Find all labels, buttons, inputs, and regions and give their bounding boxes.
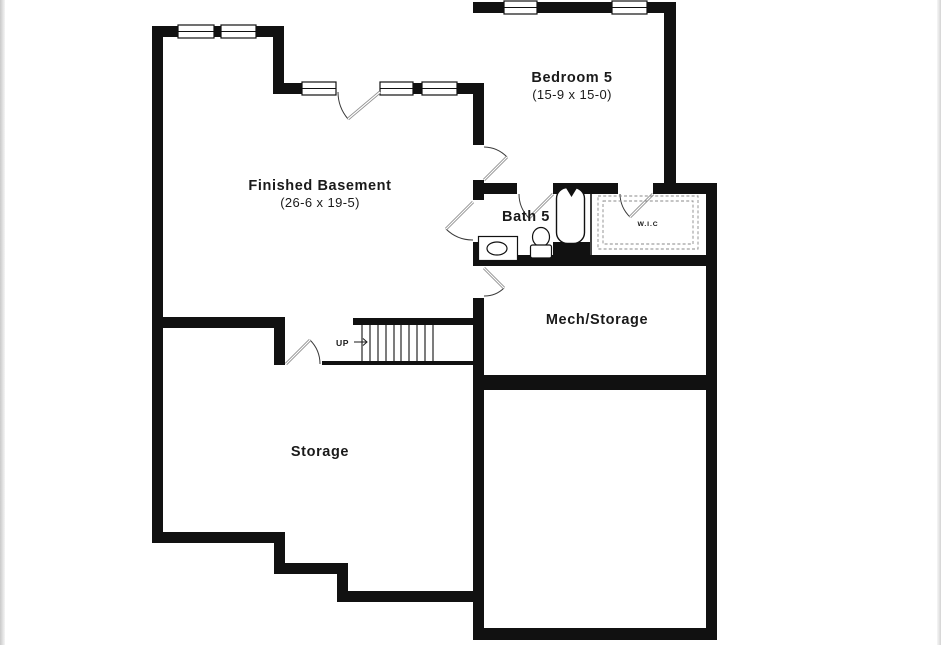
wall-segment	[484, 183, 517, 194]
window	[504, 1, 537, 14]
wall-segment	[353, 318, 484, 325]
wall-segment	[274, 317, 285, 365]
wall-segment	[664, 2, 676, 194]
wall-segment	[152, 532, 285, 543]
wall-segment	[473, 83, 484, 145]
wall-segment	[473, 628, 717, 640]
wall-segment	[152, 317, 285, 328]
room-label-finished-basement: Finished Basement	[248, 178, 391, 194]
room-dims-bedroom5: (15-9 x 15-0)	[532, 87, 612, 102]
wall-segment	[553, 242, 590, 266]
door-wic	[620, 194, 653, 217]
wall-segment	[473, 180, 484, 200]
wall-segment	[322, 361, 484, 365]
wall-segment	[473, 375, 717, 390]
bathtub	[557, 188, 585, 244]
toilet	[531, 228, 552, 259]
room-label-storage: Storage	[291, 444, 349, 460]
door-bedroom5	[484, 147, 507, 180]
door-mech-storage	[484, 268, 504, 296]
door-exterior-top	[338, 92, 380, 119]
wall-segment	[337, 591, 484, 602]
window	[302, 82, 336, 95]
window	[221, 25, 256, 38]
wall-segment	[473, 298, 484, 640]
wall-segment	[274, 563, 348, 574]
room-label-bedroom5: Bedroom 5	[531, 70, 612, 86]
wall-segment	[152, 26, 284, 37]
up-arrow-icon	[354, 339, 367, 346]
staircase: UP	[336, 325, 433, 361]
room-label-mech-storage: Mech/Storage	[546, 312, 648, 328]
room-label-wic: W.I.C	[637, 221, 658, 228]
room-dims-finished-basement: (26-6 x 19-5)	[280, 195, 360, 210]
wall-segment	[706, 183, 717, 640]
door-storage	[286, 340, 320, 364]
floorplan-canvas: UP Finished Basement (26-6 x 19	[0, 0, 941, 645]
window	[422, 82, 457, 95]
window	[612, 1, 647, 14]
wall-segment	[152, 26, 163, 543]
window	[380, 82, 413, 95]
wall-segment	[273, 26, 284, 88]
room-label-bath5: Bath 5	[502, 209, 550, 225]
window	[178, 25, 214, 38]
stairs-up-label: UP	[336, 338, 349, 348]
door-bath5-hall	[446, 202, 473, 240]
wall-segment	[653, 183, 664, 194]
vanity-sink	[479, 237, 518, 261]
